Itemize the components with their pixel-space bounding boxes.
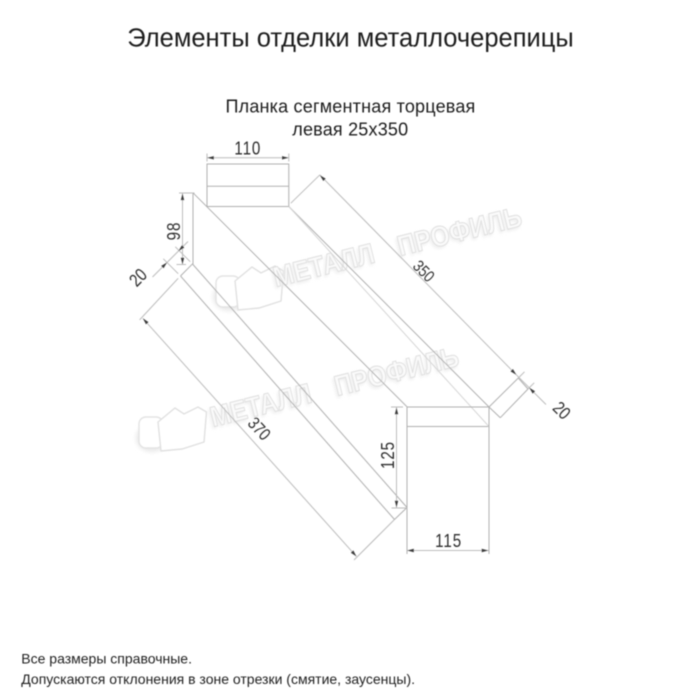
- svg-text:Планка сегментная торцевая: Планка сегментная торцевая: [225, 97, 475, 117]
- svg-text:110: 110: [234, 138, 261, 159]
- svg-text:115: 115: [435, 531, 462, 552]
- svg-text:Все размеры справочные.: Все размеры справочные.: [21, 651, 192, 667]
- svg-text:Элементы отделки металлочерепи: Элементы отделки металлочерепицы: [127, 25, 573, 53]
- svg-text:левая 25х350: левая 25х350: [292, 120, 408, 140]
- svg-text:125: 125: [377, 441, 398, 469]
- svg-text:98: 98: [164, 222, 185, 241]
- svg-text:Допускаются отклонения в зоне: Допускаются отклонения в зоне отрезки (с…: [21, 671, 415, 687]
